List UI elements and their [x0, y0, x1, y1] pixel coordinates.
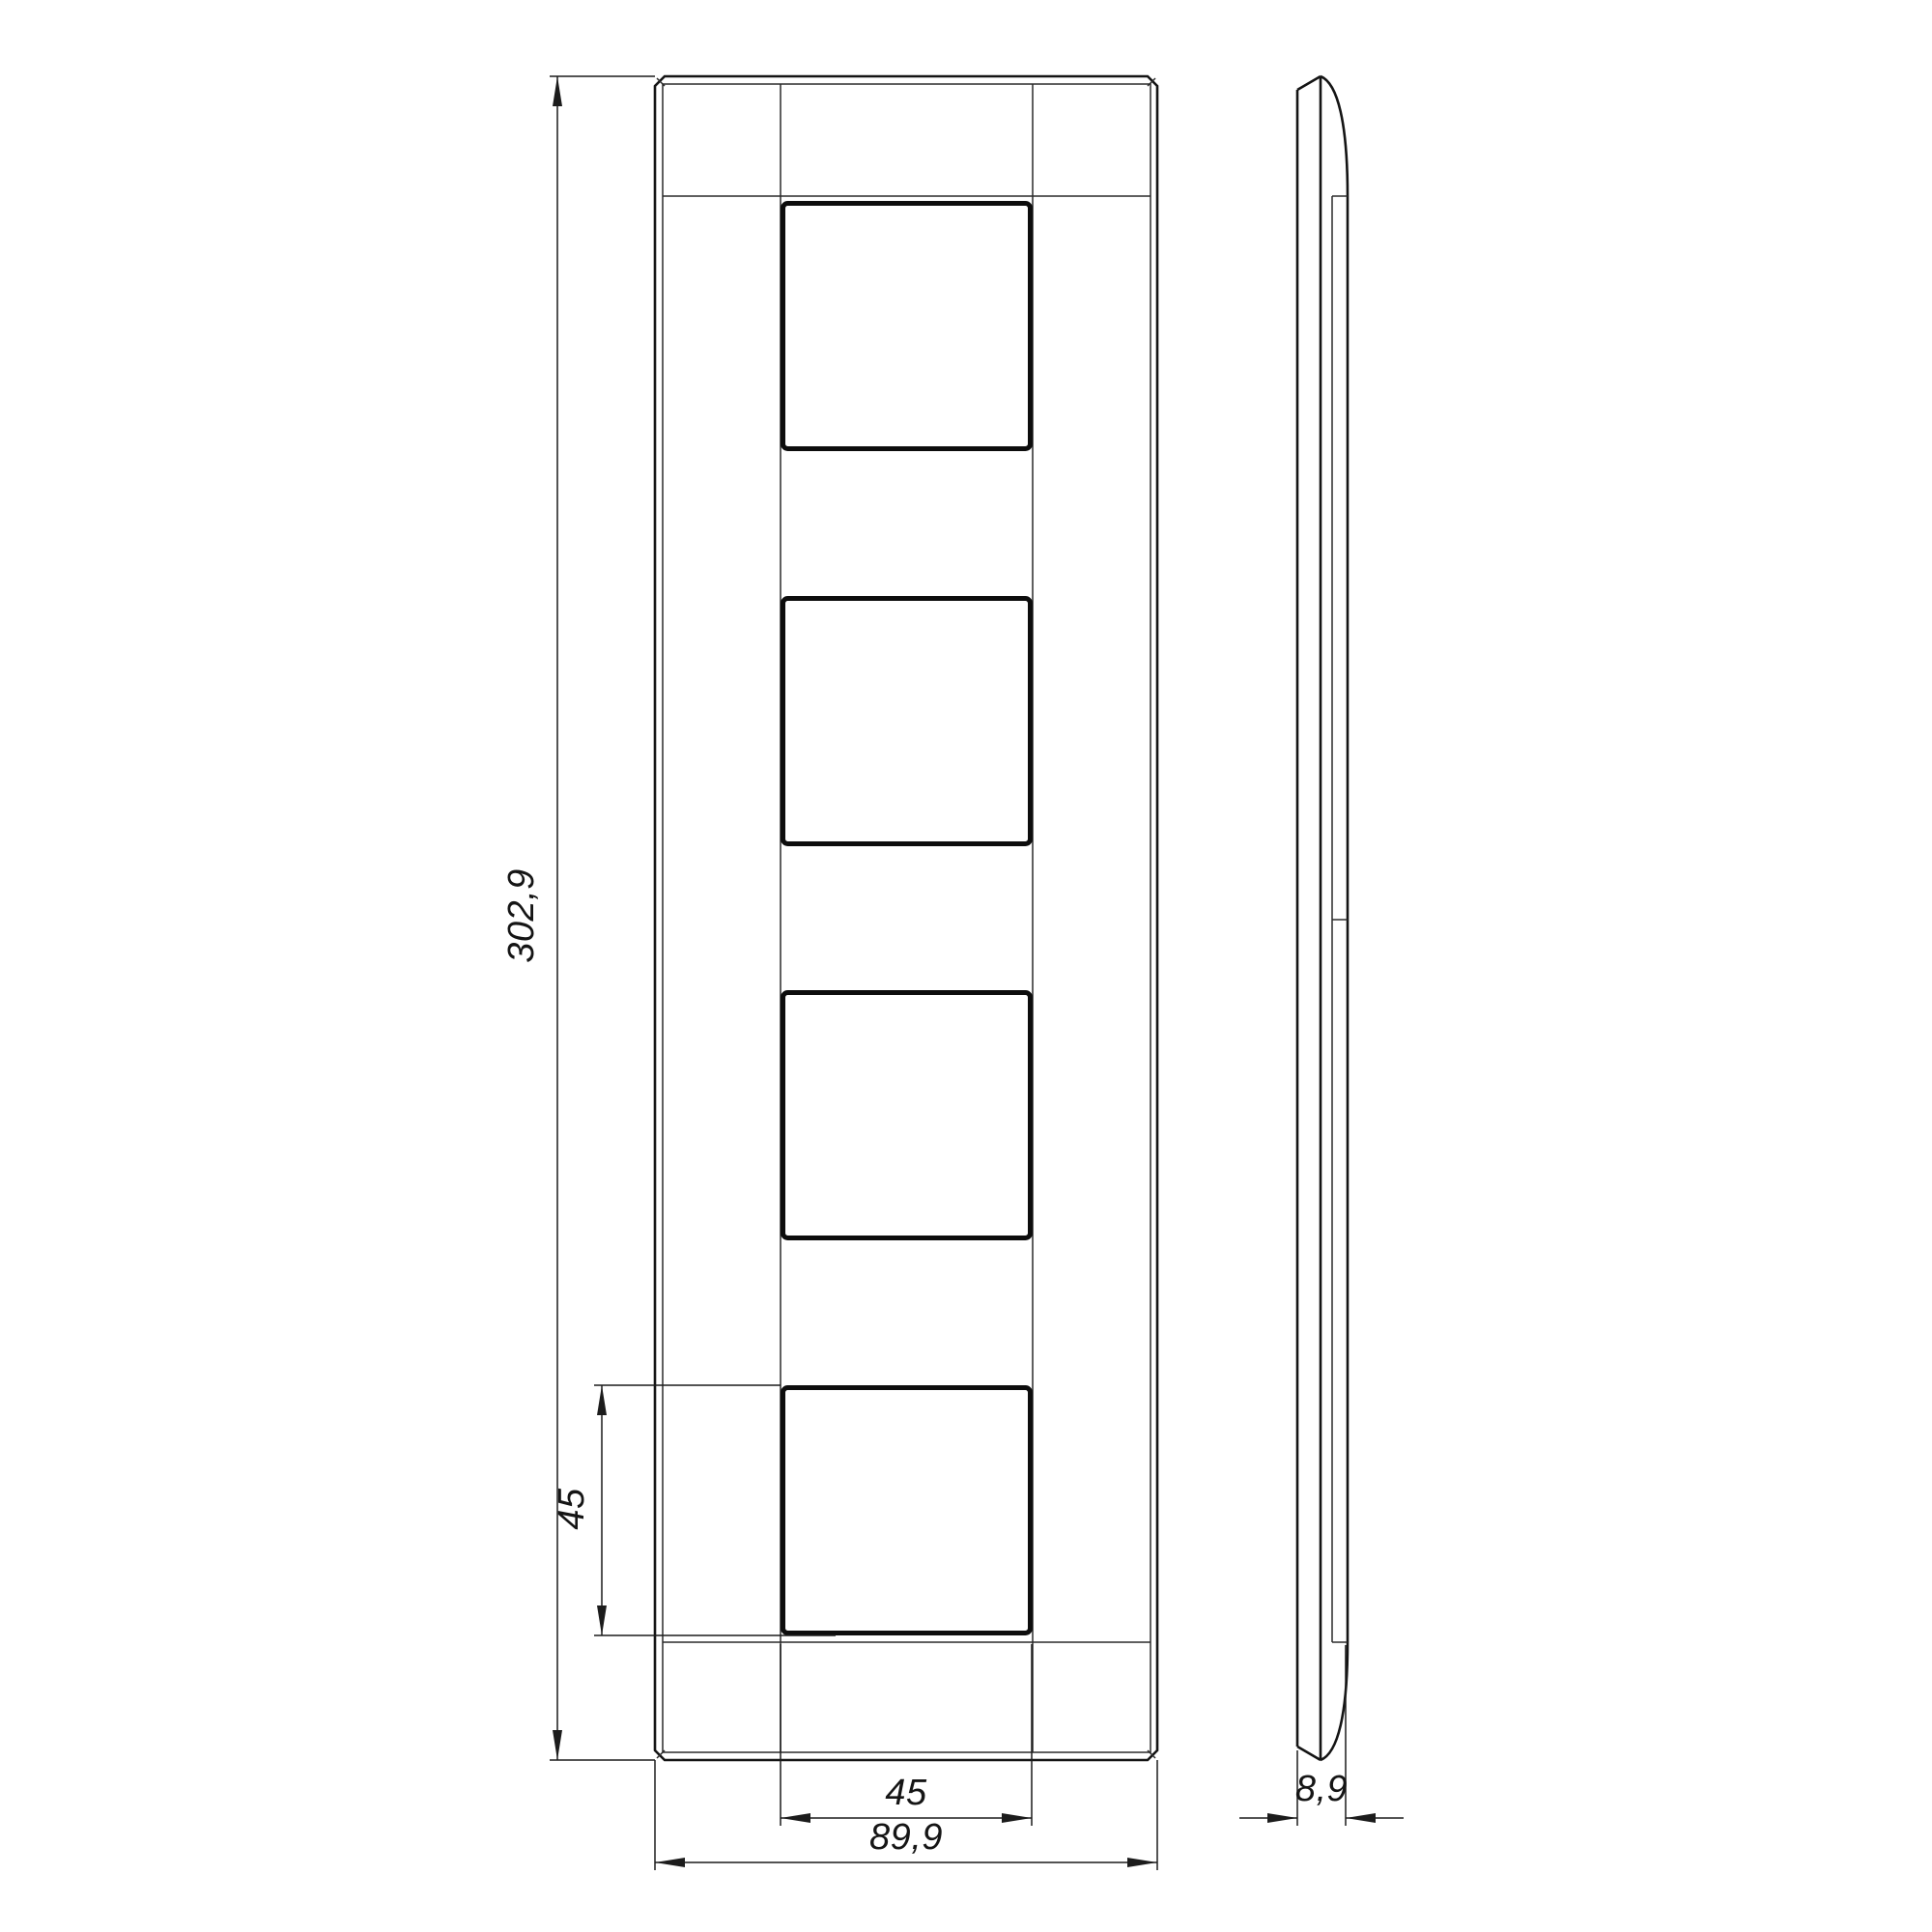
dim-label-overall-height: 302,9	[501, 868, 542, 963]
window-opening-3	[783, 993, 1031, 1238]
drawing-sheet: 302,9 45 45 89,9 8,9	[0, 0, 1932, 1932]
dimension-window-width: 45	[781, 1644, 1032, 1826]
arrow-left-icon	[781, 1813, 810, 1823]
dim-label-window-height: 45	[552, 1488, 592, 1530]
front-windows	[783, 204, 1031, 1634]
arrow-left-icon	[1346, 1813, 1376, 1823]
side-top-curve	[1321, 76, 1348, 196]
arrow-right-icon	[1002, 1813, 1032, 1823]
dimension-window-height: 45	[552, 1385, 836, 1635]
frame-technical-drawing: 302,9 45 45 89,9 8,9	[0, 0, 1932, 1932]
dim-label-overall-width: 89,9	[869, 1817, 943, 1858]
side-bottom-chamfer	[1297, 1747, 1321, 1760]
dim-label-window-width: 45	[885, 1773, 927, 1813]
side-bottom-curve	[1321, 1642, 1348, 1760]
arrow-left-icon	[655, 1858, 685, 1867]
front-channel-lines	[663, 84, 1151, 1752]
window-opening-2	[783, 599, 1031, 844]
front-outer-outline	[655, 76, 1157, 1760]
arrow-right-icon	[1127, 1858, 1157, 1867]
front-corner-seams	[657, 78, 1155, 1758]
dim-label-thickness: 8,9	[1295, 1769, 1348, 1809]
arrow-up-icon	[553, 76, 562, 106]
front-view	[655, 76, 1157, 1760]
window-opening-4	[783, 1388, 1031, 1634]
arrow-down-icon	[553, 1730, 562, 1760]
arrow-right-icon	[1267, 1813, 1297, 1823]
side-view	[1297, 76, 1348, 1760]
front-bevel-outline	[663, 84, 1151, 1752]
window-opening-1	[783, 204, 1031, 449]
side-top-chamfer	[1297, 76, 1321, 90]
arrow-down-icon	[597, 1605, 607, 1635]
arrow-up-icon	[597, 1385, 607, 1415]
side-seam-ticks	[1332, 196, 1348, 1642]
